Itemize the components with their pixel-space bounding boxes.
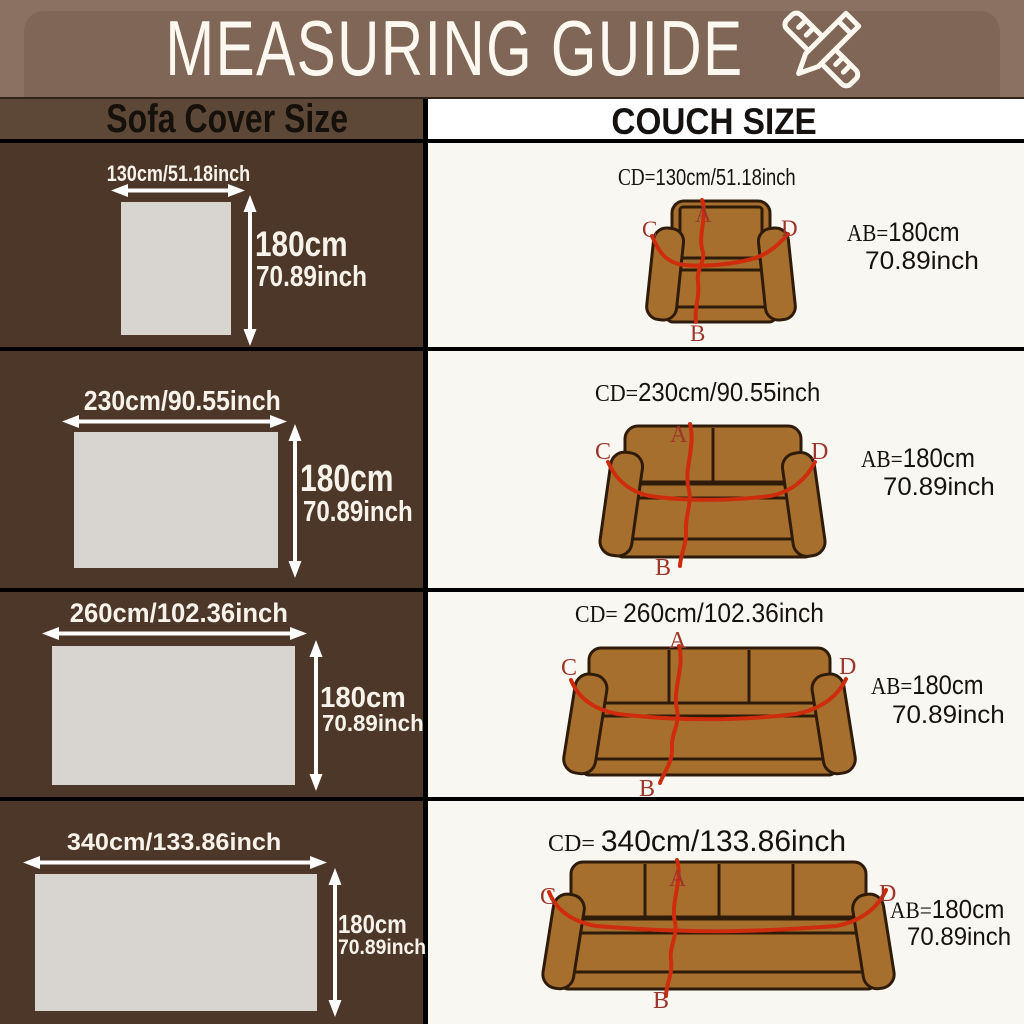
svg-text:D: D [879, 881, 896, 907]
svg-text:C: C [595, 439, 611, 465]
svg-text:D: D [781, 216, 798, 241]
svg-text:A: A [669, 628, 687, 654]
svg-text:B: B [655, 555, 671, 581]
svg-text:D: D [839, 654, 856, 680]
svg-text:A: A [695, 202, 712, 227]
svg-text:B: B [653, 988, 669, 1014]
svg-text:B: B [639, 776, 655, 802]
svg-text:C: C [561, 655, 577, 681]
svg-text:C: C [540, 884, 556, 910]
svg-text:D: D [811, 439, 828, 465]
svg-text:C: C [642, 217, 657, 242]
svg-text:B: B [690, 321, 705, 346]
svg-text:A: A [669, 866, 687, 892]
svg-text:A: A [670, 422, 688, 448]
